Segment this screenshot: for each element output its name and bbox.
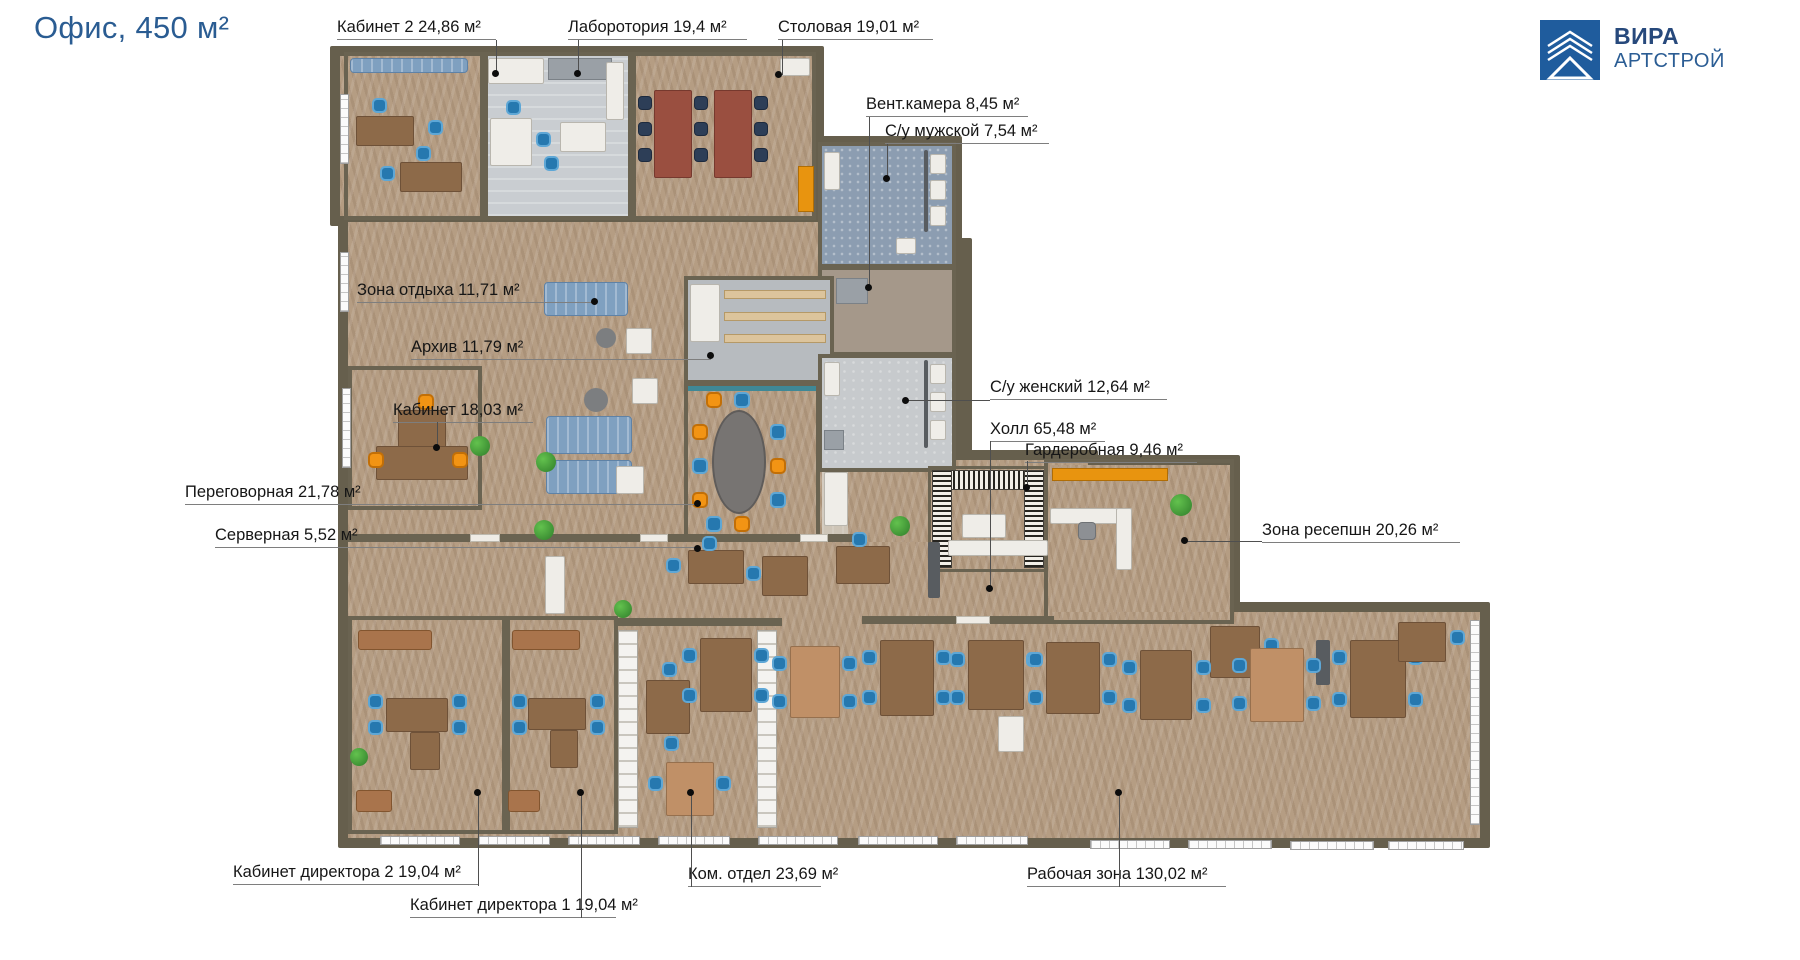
archive-shelf xyxy=(724,290,826,299)
room-label-vent: Вент.камера 8,45 м² xyxy=(866,95,1028,117)
room-label-wc-female: С/у женский 12,64 м² xyxy=(990,378,1167,400)
desk xyxy=(400,162,462,192)
office-chair xyxy=(1332,692,1347,707)
leader-dot xyxy=(492,70,499,77)
window xyxy=(658,836,730,845)
locker xyxy=(1052,468,1168,481)
company-logo: ВИРА АРТСТРОЙ xyxy=(1540,20,1725,85)
partition xyxy=(928,542,940,598)
plant xyxy=(614,600,632,618)
office-chair xyxy=(1450,630,1465,645)
office-chair xyxy=(754,648,769,663)
desk xyxy=(700,638,752,712)
window xyxy=(1188,840,1272,849)
office-chair xyxy=(1102,652,1117,667)
cabinet xyxy=(930,154,946,174)
office-chair xyxy=(692,458,708,474)
leader-line xyxy=(782,40,783,75)
page-title: Офис, 450 м² xyxy=(34,10,229,46)
cabinet xyxy=(998,716,1024,752)
office-chair xyxy=(772,694,787,709)
office-chair xyxy=(368,694,383,709)
desk xyxy=(1250,648,1304,722)
office-chair xyxy=(512,694,527,709)
office-chair xyxy=(754,688,769,703)
office-chair xyxy=(1332,650,1347,665)
logo-text-line1: ВИРА xyxy=(1614,24,1725,50)
leader-line xyxy=(478,793,479,886)
dining-chair xyxy=(694,148,708,162)
leader-dot xyxy=(474,789,481,796)
leader-dot xyxy=(1115,789,1122,796)
office-chair xyxy=(746,566,761,581)
leader-dot xyxy=(1181,537,1188,544)
office-chair xyxy=(936,650,951,665)
cabinet xyxy=(930,364,946,384)
office-chair xyxy=(1122,660,1137,675)
cabinet xyxy=(690,284,720,342)
office-chair xyxy=(648,776,663,791)
room-label-cabinet: Кабинет 18,03 м² xyxy=(393,401,533,423)
dining-chair xyxy=(638,148,652,162)
leader-dot xyxy=(591,298,598,305)
office-chair xyxy=(772,656,787,671)
cabinet xyxy=(930,392,946,412)
dining-table xyxy=(714,90,752,178)
office-chair xyxy=(682,688,697,703)
window xyxy=(858,836,938,845)
cabinet xyxy=(824,152,840,190)
office-chair xyxy=(536,132,551,147)
office-chair xyxy=(666,558,681,573)
leader-line xyxy=(990,441,991,589)
leader-line xyxy=(581,793,582,918)
cabinet xyxy=(1116,508,1132,570)
leader-dot xyxy=(577,789,584,796)
office-chair xyxy=(368,452,384,468)
cabinet xyxy=(780,58,810,76)
leader-line xyxy=(887,144,888,178)
leader-dot xyxy=(1023,484,1030,491)
dining-chair xyxy=(754,122,768,136)
office-chair xyxy=(734,392,750,408)
cabinet xyxy=(632,378,658,404)
window xyxy=(758,836,838,845)
archive-shelf xyxy=(724,334,826,343)
cabinet xyxy=(930,180,946,200)
window xyxy=(380,836,460,845)
cabinet xyxy=(962,514,1006,538)
office-chair xyxy=(770,492,786,508)
desk xyxy=(1398,622,1446,662)
sofa xyxy=(358,630,432,650)
appliance xyxy=(548,58,612,80)
office-chair xyxy=(452,694,467,709)
office-chair xyxy=(770,424,786,440)
dining-chair xyxy=(694,96,708,110)
office-chair xyxy=(380,166,395,181)
appliance xyxy=(836,278,868,304)
locker xyxy=(798,166,814,212)
window xyxy=(1388,841,1464,850)
office-chair xyxy=(664,736,679,751)
partition xyxy=(924,150,928,232)
room-label-work: Рабочая зона 130,02 м² xyxy=(1027,865,1226,887)
partition xyxy=(924,360,928,448)
leader-line xyxy=(1185,541,1262,542)
leader-line xyxy=(1119,793,1120,887)
window xyxy=(342,388,351,468)
office-chair xyxy=(1232,696,1247,711)
room-label-wardrobe: Гардеробная 9,46 м² xyxy=(1025,441,1197,463)
office-chair xyxy=(862,690,877,705)
cabinet xyxy=(896,238,916,254)
leader-dot xyxy=(902,397,909,404)
office-chair xyxy=(702,536,717,551)
desk xyxy=(762,556,808,596)
office-chair xyxy=(692,424,708,440)
leader-dot xyxy=(694,500,701,507)
room-label-wc-male: С/у мужской 7,54 м² xyxy=(885,122,1049,144)
room-label-meeting: Переговорная 21,78 м² xyxy=(185,483,698,505)
cabinet xyxy=(948,540,1048,556)
room-label-archive: Архив 11,79 м² xyxy=(411,338,711,360)
office-chair xyxy=(1122,698,1137,713)
cabinet xyxy=(606,62,624,120)
office-chair xyxy=(1232,658,1247,673)
leader-line xyxy=(869,117,870,288)
office-chair xyxy=(590,694,605,709)
desk xyxy=(386,698,448,732)
room-label-cabinet2: Кабинет 2 24,86 м² xyxy=(337,18,496,40)
office-chair xyxy=(770,458,786,474)
desk xyxy=(356,116,414,146)
meeting-table xyxy=(712,410,766,514)
logo-mark-icon xyxy=(1540,20,1600,85)
office-chair xyxy=(706,392,722,408)
leader-line xyxy=(496,40,497,74)
cabinet xyxy=(560,122,606,152)
office-chair xyxy=(852,532,867,547)
office-chair xyxy=(1408,692,1423,707)
room-label-director1: Кабинет директора 1 19,04 м² xyxy=(410,896,616,918)
leader-line xyxy=(578,40,579,74)
dining-chair xyxy=(638,122,652,136)
cabinet xyxy=(545,556,565,614)
office-chair xyxy=(1306,696,1321,711)
coffee-table xyxy=(584,388,608,412)
window xyxy=(340,94,349,164)
office-chair xyxy=(936,690,951,705)
sofa xyxy=(546,416,632,454)
door xyxy=(800,534,828,542)
office-chair xyxy=(1028,690,1043,705)
office-chair xyxy=(1078,522,1096,540)
dining-chair xyxy=(754,96,768,110)
dining-table xyxy=(654,90,692,178)
room-label-komm: Ком. отдел 23,69 м² xyxy=(688,865,821,887)
desk xyxy=(880,640,934,716)
wall xyxy=(614,618,782,626)
leader-dot xyxy=(694,545,701,552)
window xyxy=(1290,841,1374,850)
logo-text-line2: АРТСТРОЙ xyxy=(1614,50,1725,72)
office-chair xyxy=(452,452,468,468)
room-label-rest: Зона отдыха 11,71 м² xyxy=(357,281,595,303)
desk xyxy=(410,732,440,770)
office-chair xyxy=(1102,690,1117,705)
window xyxy=(1090,840,1170,849)
leader-dot xyxy=(775,71,782,78)
desk xyxy=(550,730,578,768)
office-chair xyxy=(1196,698,1211,713)
plant xyxy=(470,436,490,456)
window xyxy=(1470,620,1480,825)
office-chair xyxy=(372,98,387,113)
leader-dot xyxy=(574,70,581,77)
office-chair xyxy=(716,776,731,791)
desk xyxy=(790,646,840,718)
office-chair xyxy=(842,656,857,671)
desk xyxy=(688,550,744,584)
office-chair xyxy=(512,720,527,735)
desk xyxy=(968,640,1024,710)
office-chair xyxy=(368,720,383,735)
leader-dot xyxy=(986,585,993,592)
cabinet xyxy=(490,118,532,166)
window xyxy=(568,836,640,845)
sofa xyxy=(508,790,540,812)
room-label-hall: Холл 65,48 м² xyxy=(990,420,1105,442)
office-chair xyxy=(1028,652,1043,667)
plant xyxy=(536,452,556,472)
dining-chair xyxy=(638,96,652,110)
cabinet xyxy=(930,206,946,226)
desk xyxy=(836,546,890,584)
leader-dot xyxy=(433,444,440,451)
office-chair xyxy=(1196,660,1211,675)
sofa xyxy=(350,58,468,73)
office-chair xyxy=(862,650,877,665)
window xyxy=(956,836,1028,845)
cabinet xyxy=(824,362,840,396)
plant xyxy=(890,516,910,536)
office-chair xyxy=(416,146,431,161)
office-chair xyxy=(682,648,697,663)
sofa xyxy=(512,630,580,650)
office-chair xyxy=(950,652,965,667)
office-chair xyxy=(706,516,722,532)
room-label-reception: Зона ресепшн 20,26 м² xyxy=(1262,521,1460,543)
room-label-dining: Столовая 19,01 м² xyxy=(778,18,933,40)
leader-line xyxy=(908,400,990,401)
office-chair xyxy=(1306,658,1321,673)
leader-dot xyxy=(687,789,694,796)
leader-dot xyxy=(865,284,872,291)
office-chair xyxy=(428,120,443,135)
door xyxy=(956,616,990,624)
plant xyxy=(1170,494,1192,516)
office-chair xyxy=(662,662,677,677)
office-chair xyxy=(842,694,857,709)
leader-line xyxy=(691,793,692,887)
office-chair xyxy=(506,100,521,115)
dining-chair xyxy=(754,148,768,162)
room-label-server: Серверная 5,52 м² xyxy=(215,526,700,548)
sofa xyxy=(356,790,392,812)
office-chair xyxy=(590,720,605,735)
office-chair xyxy=(544,156,559,171)
room-label-director2: Кабинет директора 2 19,04 м² xyxy=(233,863,479,885)
office-chair xyxy=(452,720,467,735)
cabinet xyxy=(930,420,946,440)
cabinet xyxy=(824,472,848,526)
window xyxy=(478,836,550,845)
appliance xyxy=(824,430,844,450)
window xyxy=(340,252,349,312)
leader-dot xyxy=(883,175,890,182)
shelving xyxy=(618,630,638,828)
desk xyxy=(1140,650,1192,720)
plant xyxy=(350,748,368,766)
glass-wall xyxy=(688,386,816,391)
leader-dot xyxy=(707,352,714,359)
office-chair xyxy=(734,516,750,532)
dining-chair xyxy=(694,122,708,136)
archive-shelf xyxy=(724,312,826,321)
desk xyxy=(528,698,586,730)
room-label-laboratory: Лаборотория 19,4 м² xyxy=(568,18,747,40)
desk xyxy=(1046,642,1100,714)
office-chair xyxy=(950,690,965,705)
